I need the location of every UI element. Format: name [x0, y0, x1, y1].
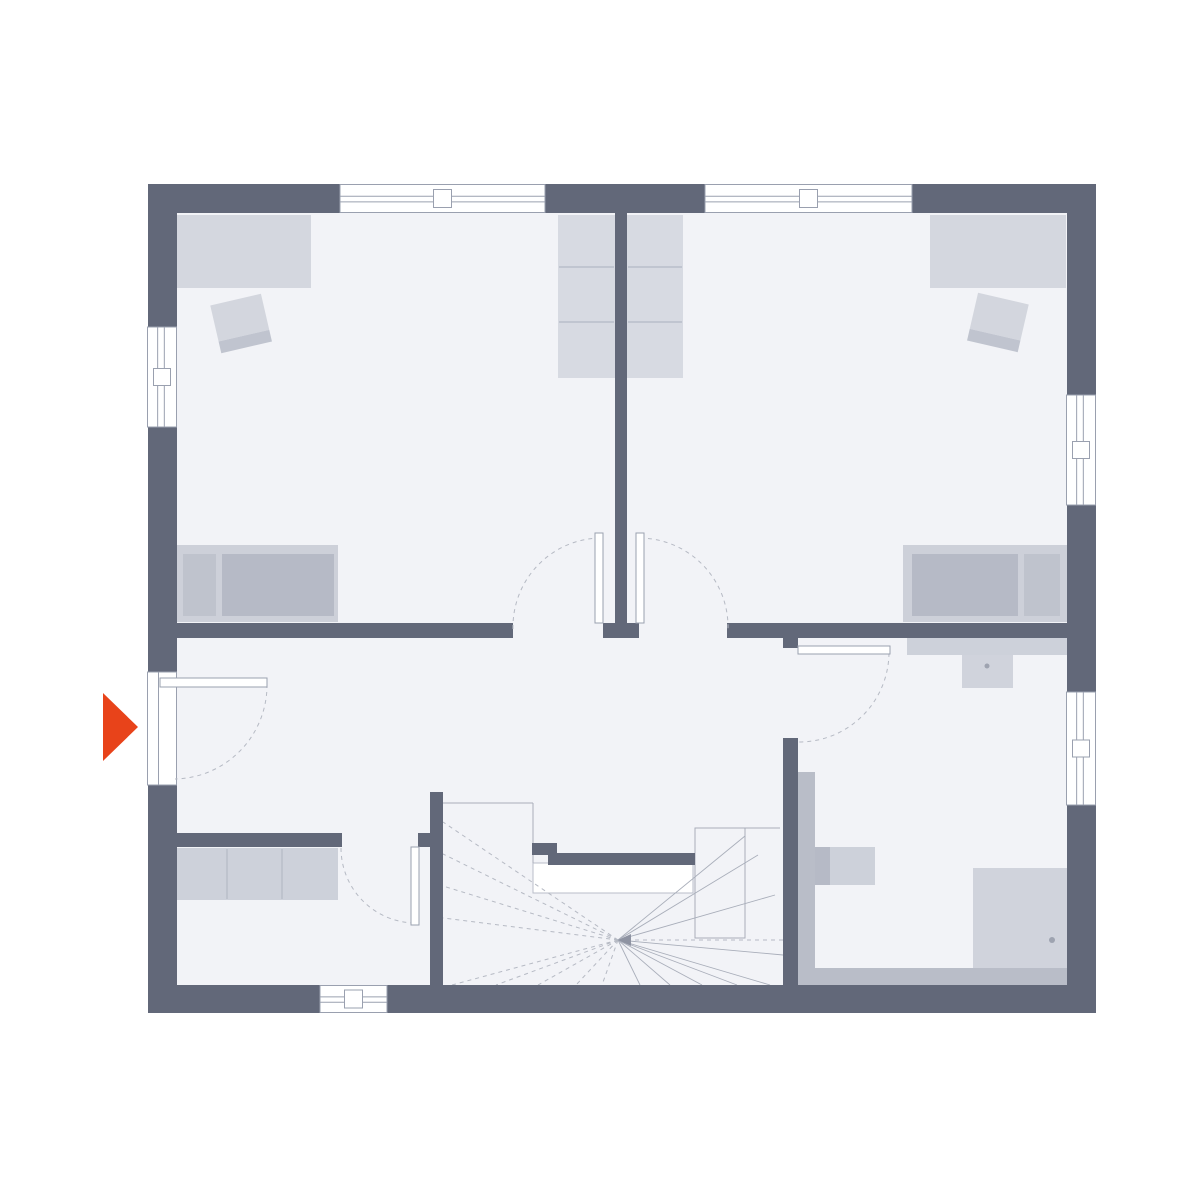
wall-divider-stub: [603, 623, 639, 638]
bed-left-pillow: [183, 554, 216, 616]
sink-drain-dot: [985, 664, 990, 669]
floor-plan-page: [0, 0, 1200, 1200]
wall-left-upper: [148, 184, 177, 327]
door-niche-leaf: [411, 847, 419, 925]
wall-stair-landing: [548, 853, 695, 865]
entrance-door-frame: [148, 672, 177, 785]
wall-niche: [167, 833, 342, 847]
bath-install-wall-left: [798, 772, 815, 970]
wall-hallway-left: [167, 623, 513, 638]
wall-top-center: [545, 184, 705, 213]
bed-right-mattress: [912, 554, 1018, 616]
wardrobe-bedroom-left: [175, 215, 311, 288]
closet-center-left: [558, 215, 615, 378]
wall-hallway-right: [727, 623, 1067, 638]
bed-right-pillow: [1024, 554, 1060, 616]
entrance-door-leaf: [160, 678, 267, 687]
shower-drain-dot: [1049, 937, 1055, 943]
wardrobe-bedroom-right: [930, 215, 1066, 288]
window-bottom-handle: [345, 990, 363, 1008]
wall-left-lower: [148, 785, 177, 1013]
wall-bedroom-divider: [615, 213, 627, 623]
closet-center-right: [627, 215, 683, 378]
sideboard-niche: [175, 848, 338, 900]
wall-right-lower: [1067, 805, 1096, 1013]
entrance-direction-arrow: [103, 693, 138, 761]
floor-plan-canvas: [0, 0, 1200, 1200]
wall-bathroom-left: [783, 738, 798, 985]
window-right-upper-handle: [1073, 442, 1090, 459]
bed-left-mattress: [222, 554, 334, 616]
window-top-right-handle: [800, 190, 818, 208]
bath-vanity-counter: [907, 638, 1067, 655]
toilet-tank: [815, 847, 830, 885]
window-left-handle: [154, 369, 171, 386]
wall-right-middle: [1067, 505, 1096, 692]
shower-tray: [973, 868, 1067, 968]
stairwell-void: [533, 863, 693, 893]
door-bedroom-right-leaf: [636, 533, 644, 623]
window-top-left-handle: [434, 190, 452, 208]
wall-right-upper: [1067, 184, 1096, 395]
bath-sink: [962, 655, 1013, 688]
wall-bottom-right: [387, 985, 1096, 1013]
door-bathroom-leaf: [798, 646, 890, 654]
wall-stair-west: [430, 792, 443, 985]
wall-bathroom-stub: [783, 638, 798, 648]
wall-bottom-left: [148, 985, 320, 1013]
door-bedroom-left-leaf: [595, 533, 603, 623]
window-right-lower-handle: [1073, 740, 1090, 757]
toilet-bowl: [830, 847, 875, 885]
bath-install-wall-bottom: [798, 968, 1067, 985]
